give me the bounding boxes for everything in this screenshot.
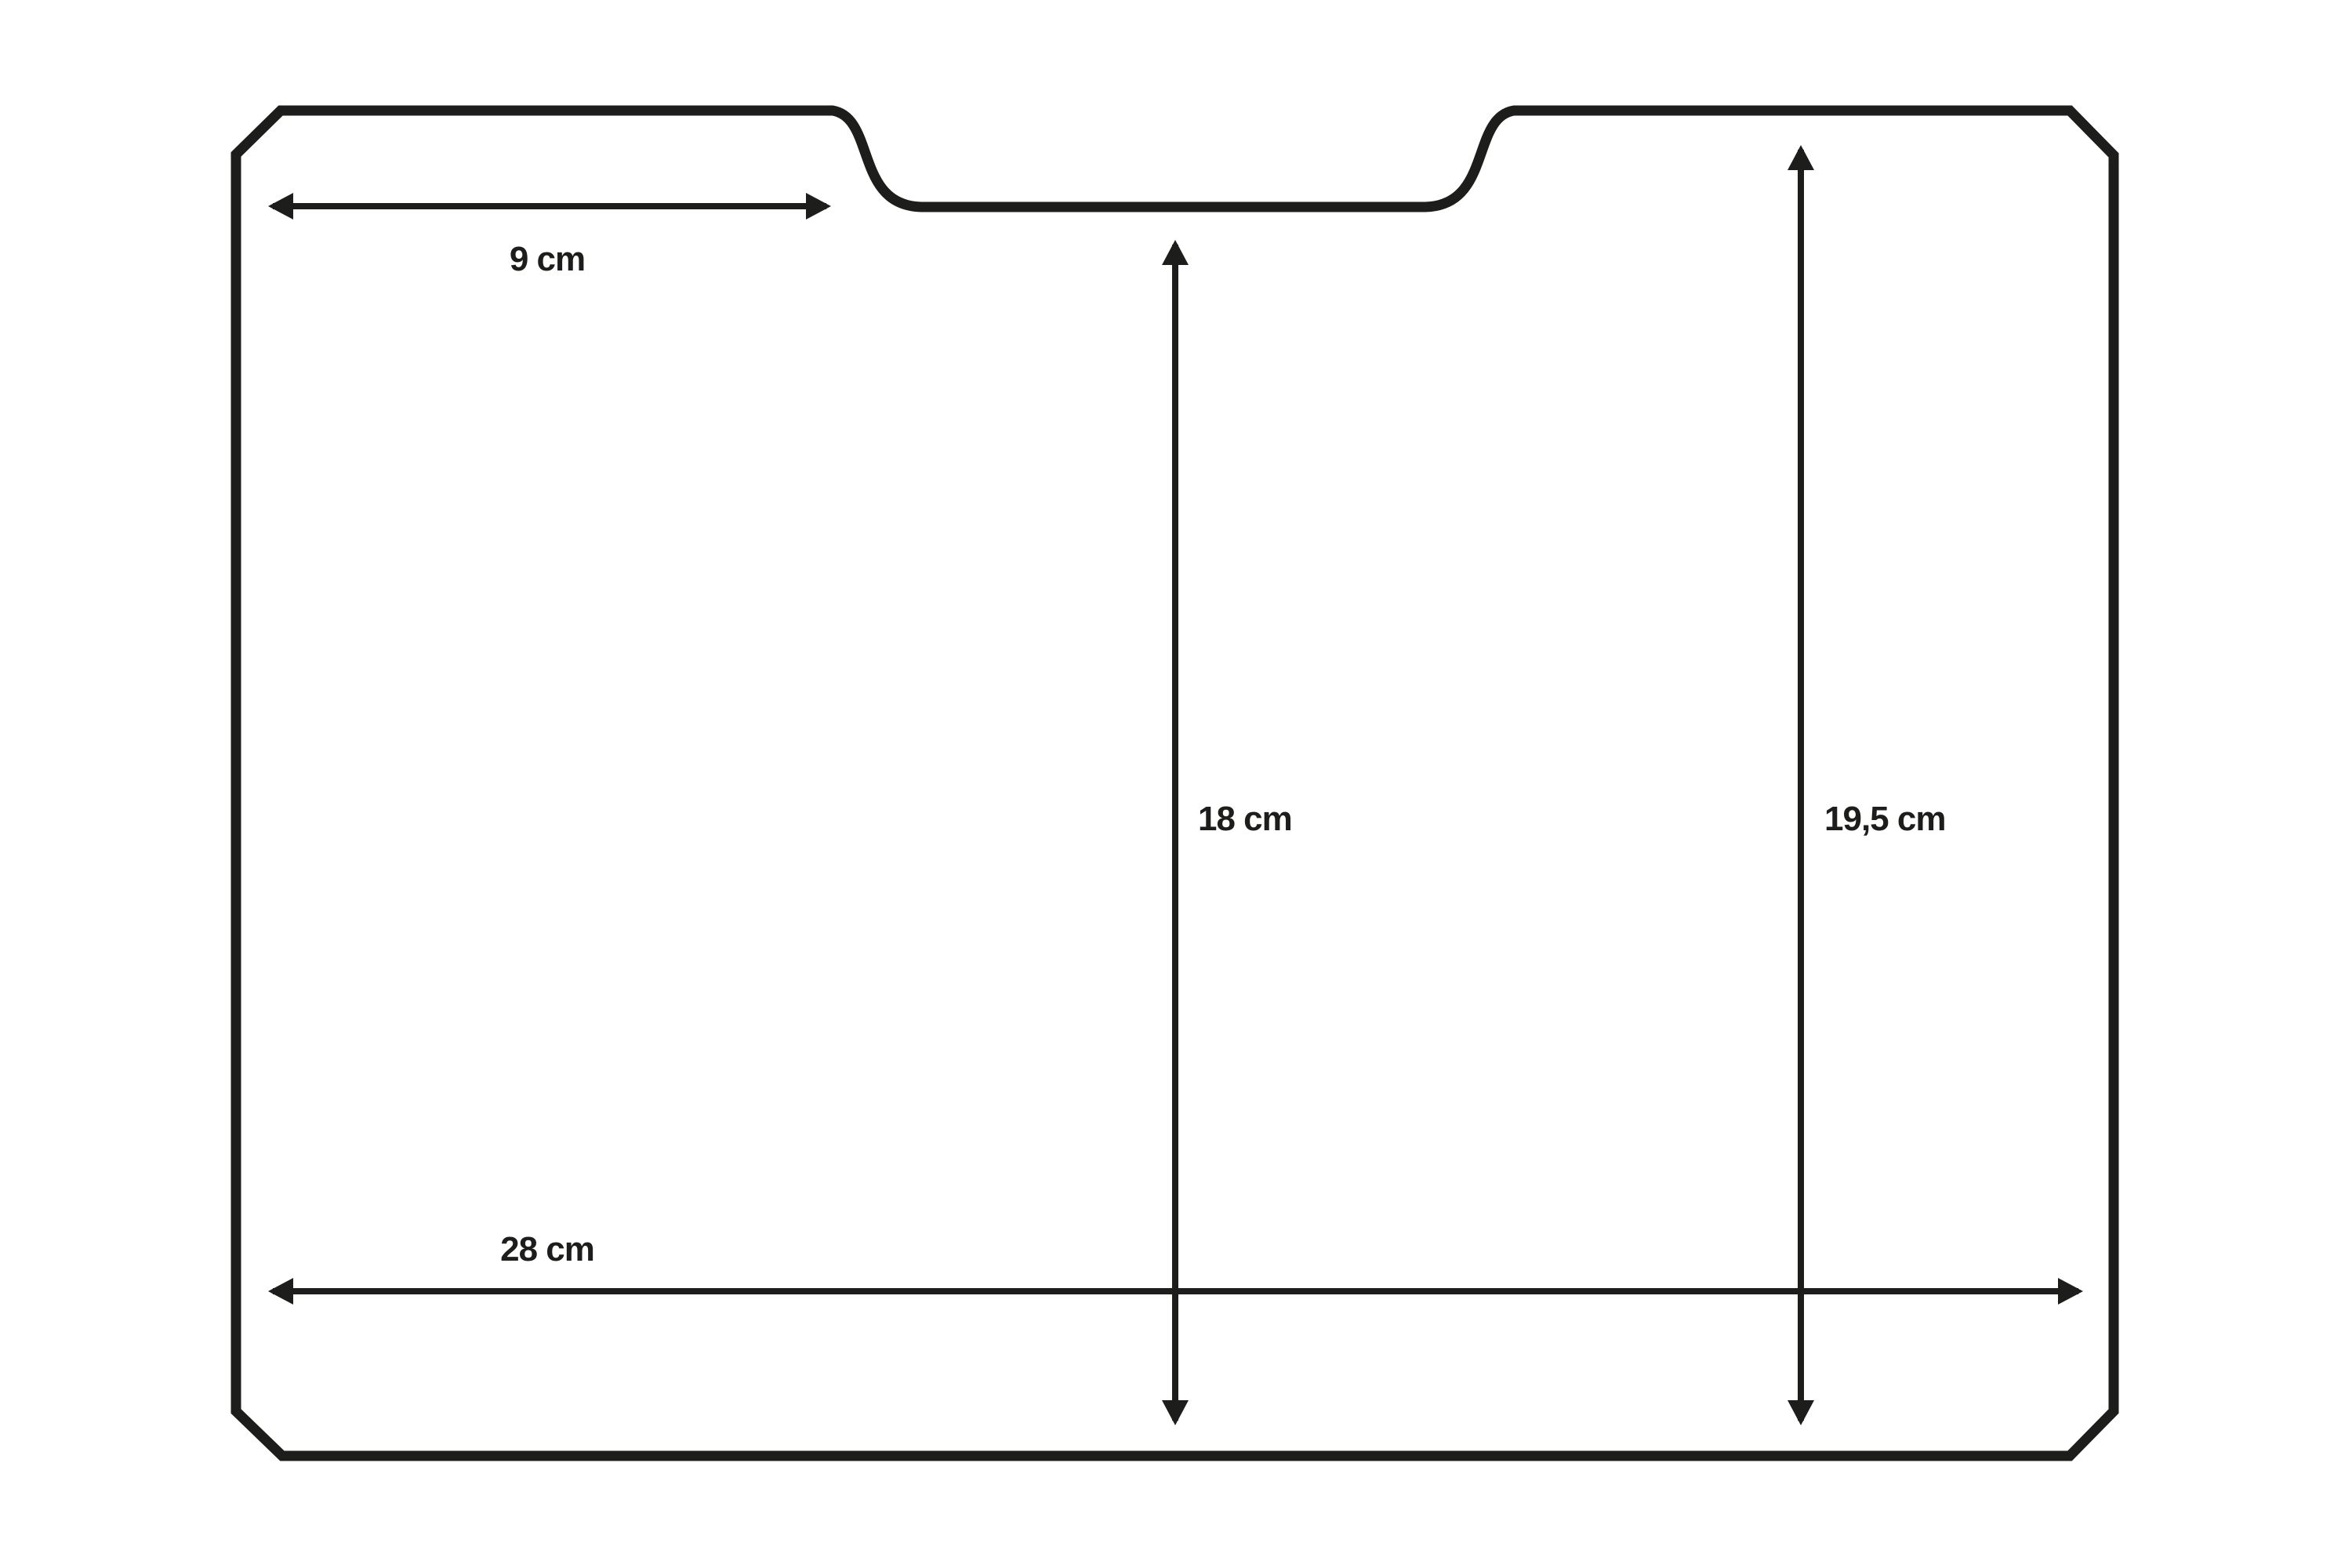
arrowhead-right-icon [2058, 1278, 2083, 1305]
dimension-overall-height: 19,5 cm [1788, 145, 1945, 1425]
arrowhead-up-icon [1788, 145, 1814, 170]
arrowhead-down-icon [1788, 1400, 1814, 1425]
dimension-label: 18 cm [1198, 800, 1292, 838]
arrowhead-down-icon [1162, 1400, 1189, 1425]
dimension-inner-height: 18 cm [1162, 240, 1292, 1425]
dimension-label: 28 cm [500, 1230, 594, 1269]
diagram-canvas: 9 cm 18 cm 19,5 cm 28 cm [0, 0, 2352, 1568]
technical-drawing: 9 cm 18 cm 19,5 cm 28 cm [0, 0, 2352, 1568]
dimension-tab-width: 9 cm [268, 193, 831, 278]
arrowhead-up-icon [1162, 240, 1189, 265]
arrowhead-right-icon [806, 193, 831, 220]
dimension-label: 19,5 cm [1824, 800, 1945, 838]
dimension-label: 9 cm [510, 240, 585, 278]
arrowhead-left-icon [268, 1278, 293, 1305]
arrowhead-left-icon [268, 193, 293, 220]
